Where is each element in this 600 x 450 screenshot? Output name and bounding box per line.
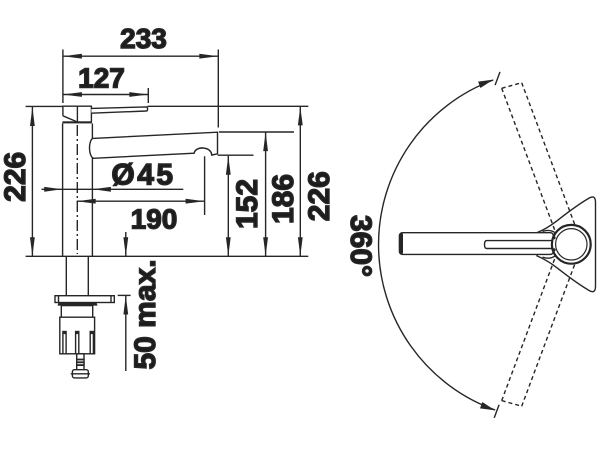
svg-text:233: 233 [120,23,167,54]
svg-text:226: 226 [303,171,336,221]
svg-text:50 max.: 50 max. [129,259,162,369]
svg-text:Ø45: Ø45 [111,159,175,192]
svg-text:360°: 360° [344,215,377,277]
svg-text:226: 226 [0,152,32,202]
svg-text:152: 152 [231,179,264,229]
svg-text:190: 190 [131,203,178,234]
svg-text:127: 127 [78,62,125,93]
svg-text:186: 186 [267,174,300,224]
